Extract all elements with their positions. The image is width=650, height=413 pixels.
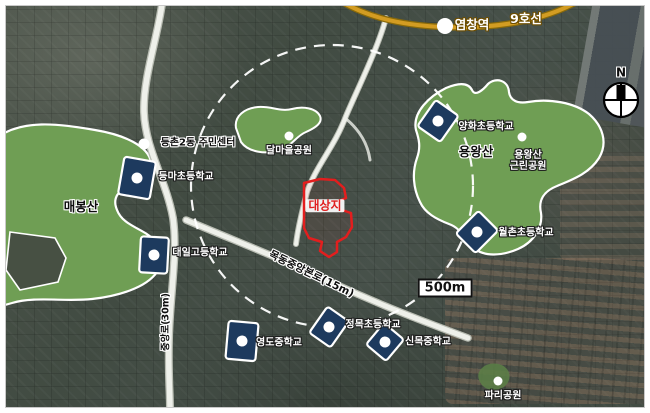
park-inner-city-notch bbox=[6, 232, 66, 290]
school-label-sinmok: 신목중학교 bbox=[405, 336, 451, 347]
road-label-vertical: 중앙로(30m) bbox=[162, 293, 173, 351]
compass-icon bbox=[603, 82, 639, 118]
park-maebongsan-shape bbox=[0, 124, 162, 308]
park-label-paris: 파리공원 bbox=[485, 390, 522, 401]
school-label-deungma: 등마초등학교 bbox=[158, 171, 213, 182]
satellite-map: 염창역 9호선 등촌2동 주민센터 등마초등학교 대일고등학교 매봉산 달마을공… bbox=[0, 0, 650, 413]
poi-dot-yongwangsan-park bbox=[518, 133, 527, 142]
park-label-dalmaeul: 달마을공원 bbox=[266, 145, 312, 156]
line9-label: 9호선 bbox=[510, 12, 542, 26]
school-label-jeongmok: 정목초등학교 bbox=[345, 319, 400, 330]
school-label-yeongdo: 영도중학교 bbox=[256, 337, 302, 348]
school-marker-jeongmok bbox=[309, 306, 349, 347]
school-label-wolchon: 월촌초등학교 bbox=[498, 227, 553, 238]
school-marker-yeongdo bbox=[225, 321, 258, 361]
park-label-line1: 용왕산 bbox=[510, 150, 547, 161]
map-screenshot: { "subway": { "station": "염창역", "line": … bbox=[0, 0, 650, 413]
school-marker-deungma bbox=[118, 157, 156, 200]
poi-dot-dalmaeul-park bbox=[285, 132, 294, 141]
scale-500m-label: 500m bbox=[418, 279, 473, 298]
station-dot-yeomchang bbox=[437, 18, 453, 34]
park-label-line2: 근린공원 bbox=[510, 161, 547, 172]
park-paris-shape bbox=[478, 364, 509, 391]
school-label-daeil: 대일고등학교 bbox=[172, 247, 227, 258]
park-label-yongwangsan: 용왕산 bbox=[459, 145, 494, 159]
community-center-label: 등촌2동 주민센터 bbox=[161, 137, 236, 148]
target-site-label: 대상지 bbox=[305, 199, 344, 212]
school-marker-daeil bbox=[139, 236, 169, 273]
compass-north-label: N bbox=[616, 66, 626, 79]
station-label: 염창역 bbox=[455, 18, 490, 32]
poi-dot-community-center bbox=[139, 139, 150, 150]
target-site-outline bbox=[304, 179, 352, 257]
park-label-yongwangsan-neighborhood: 용왕산 근린공원 bbox=[510, 150, 547, 172]
school-label-yanghwa: 양화초등학교 bbox=[458, 121, 513, 132]
park-label-maebongsan: 매봉산 bbox=[64, 200, 99, 214]
poi-dot-paris-park bbox=[494, 377, 503, 386]
